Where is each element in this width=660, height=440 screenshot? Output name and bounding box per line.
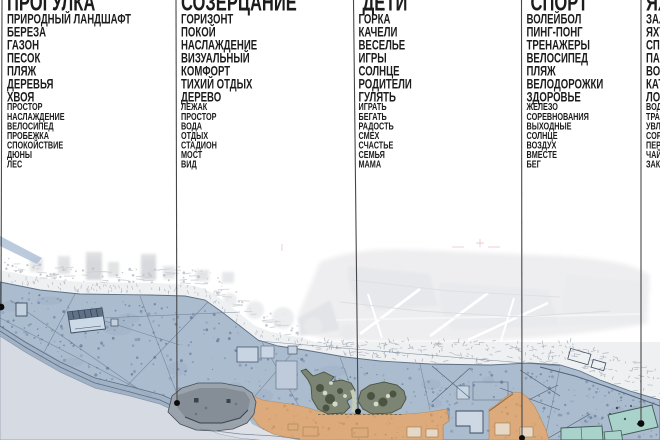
svg-text:МАМА: МАМА	[359, 159, 382, 170]
svg-text:ЗАКАТ: ЗАКАТ	[646, 159, 660, 170]
svg-text:БЕГ: БЕГ	[527, 159, 541, 170]
svg-text:ВИД: ВИД	[181, 159, 197, 170]
svg-text:ЛЕС: ЛЕС	[7, 159, 22, 170]
